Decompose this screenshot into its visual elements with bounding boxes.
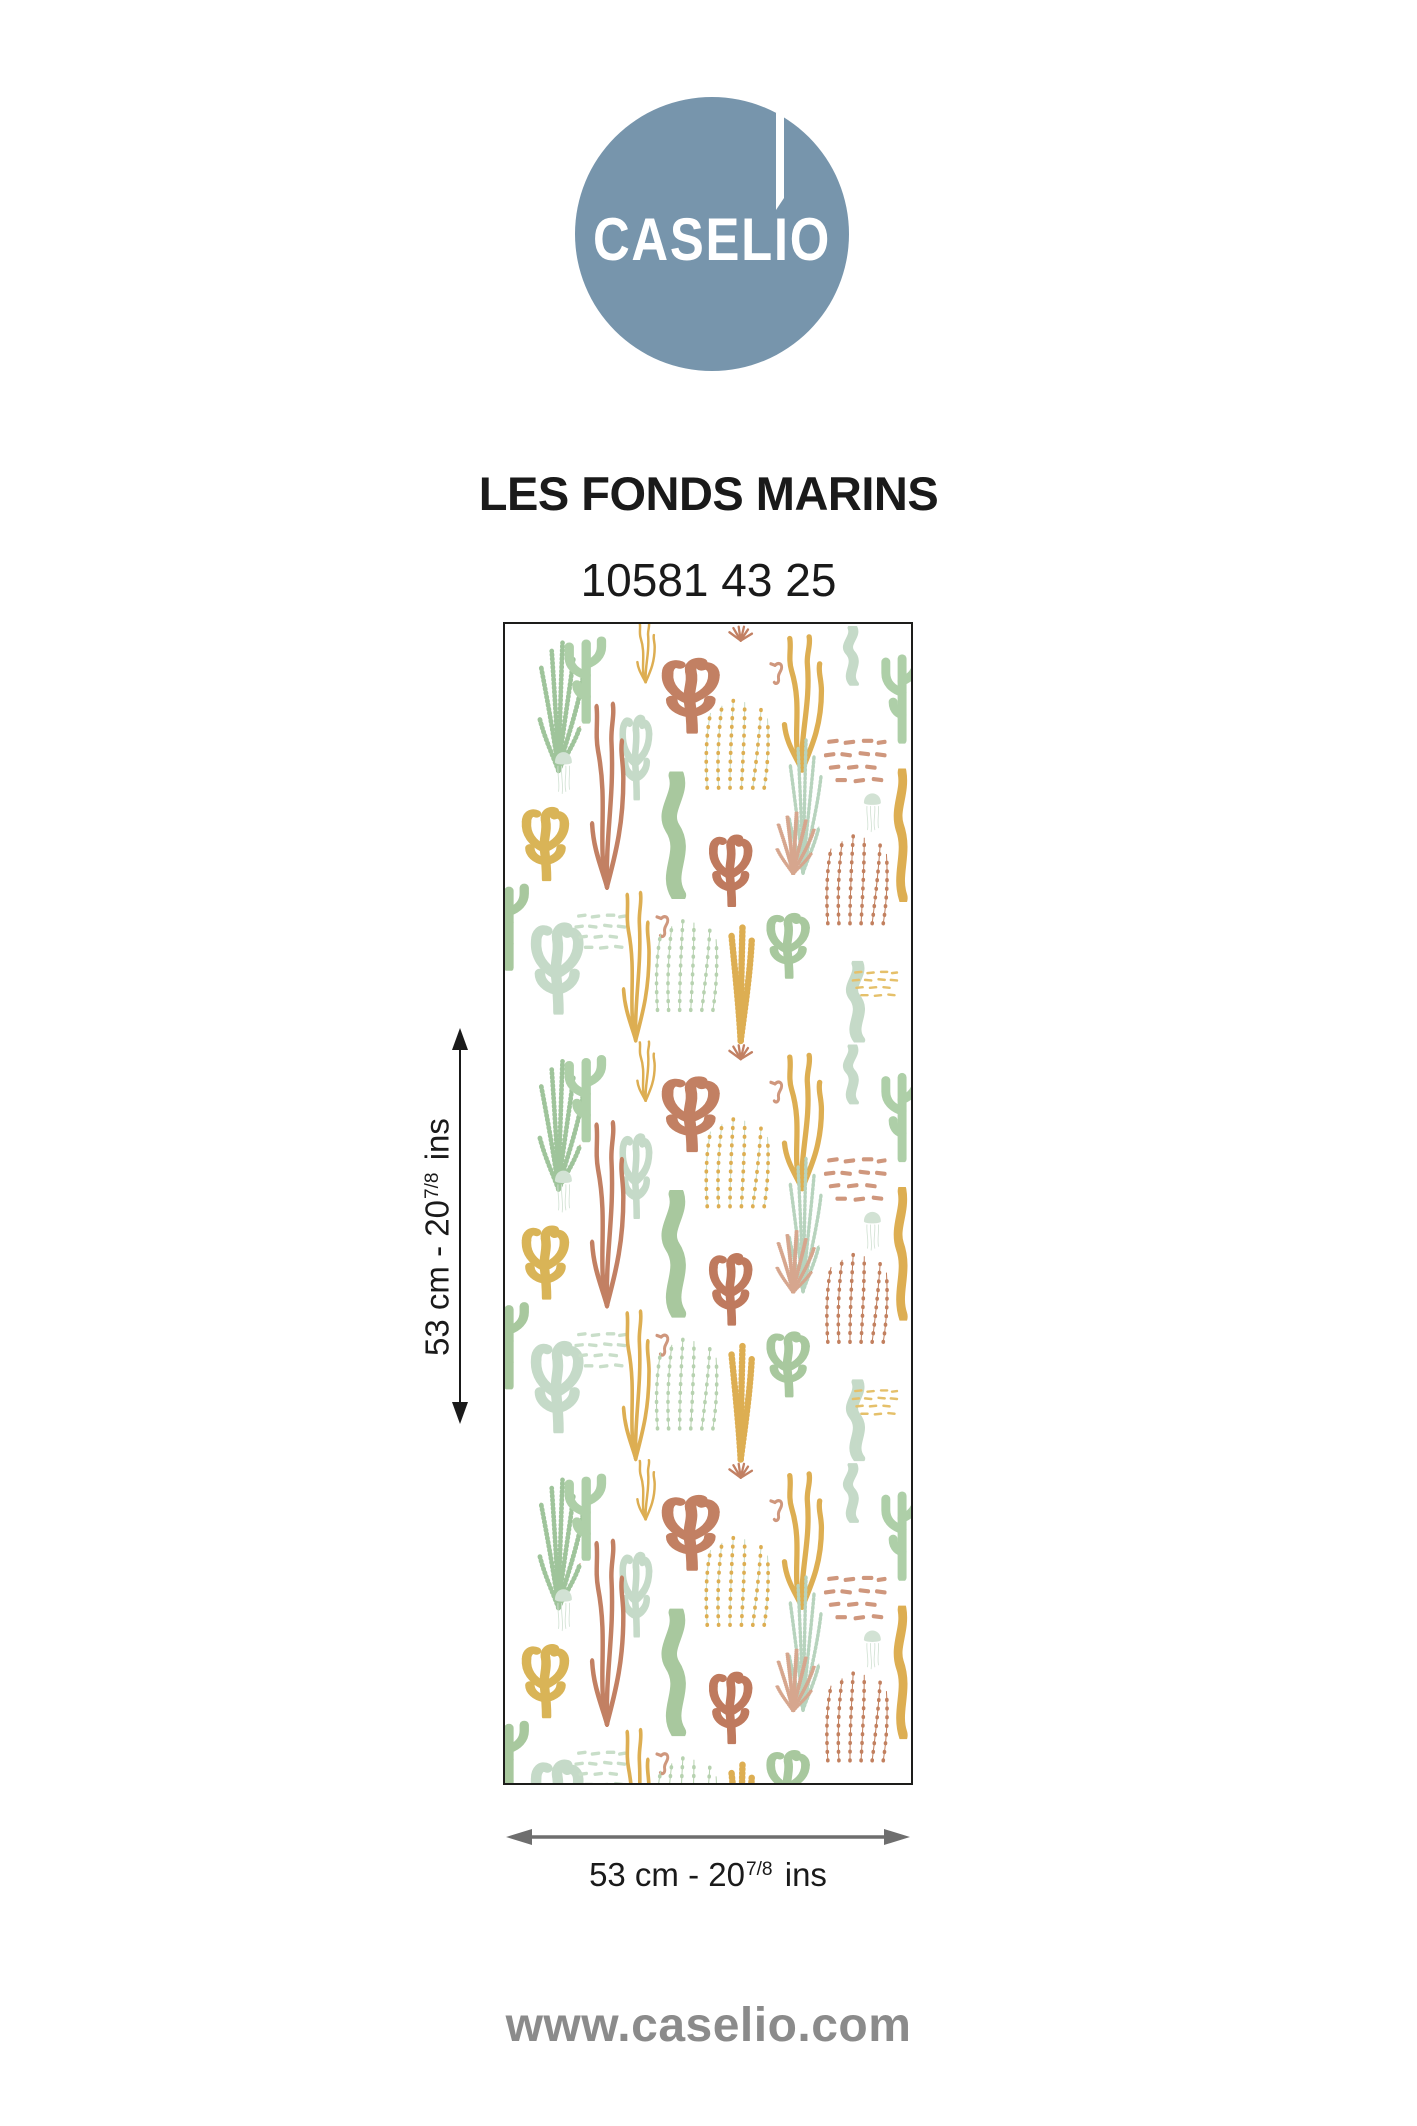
caselio-logo: CASELIO xyxy=(575,97,849,371)
logo-brand-text: CASELIO xyxy=(593,206,831,273)
arrowhead-down-icon xyxy=(452,1402,468,1424)
product-reference: 10581 43 25 xyxy=(0,557,1417,603)
width-fraction: 7/8 xyxy=(746,1859,773,1880)
wallpaper-swatch xyxy=(503,622,913,1785)
width-unit: ins xyxy=(776,1856,827,1893)
width-dimension-label: 53 cm - 207/8 ins xyxy=(503,1856,913,1894)
height-fraction: 7/8 xyxy=(422,1172,443,1199)
product-sheet: CASELIO LES FONDS MARINS 10581 43 25 xyxy=(0,0,1417,2126)
logo-stem-line xyxy=(776,113,784,210)
arrowhead-right-icon xyxy=(884,1829,910,1845)
pattern-tile-repeat xyxy=(505,1042,911,1460)
width-dimension-arrow xyxy=(503,1827,913,1847)
collection-title: LES FONDS MARINS xyxy=(0,470,1417,517)
website-url: www.caselio.com xyxy=(0,1998,1417,2053)
height-dimension-label: 53 cm - 207/8 ins xyxy=(415,1087,451,1387)
wallpaper-pattern-svg xyxy=(505,624,911,1783)
pattern-tile-repeat xyxy=(505,624,911,1041)
height-value: 53 cm - 20 xyxy=(419,1200,456,1356)
arrowhead-left-icon xyxy=(506,1829,532,1845)
width-value: 53 cm - 20 xyxy=(589,1856,745,1893)
arrowhead-up-icon xyxy=(452,1028,468,1050)
height-unit: ins xyxy=(419,1118,456,1169)
pattern-tile-repeat xyxy=(505,1460,911,1783)
